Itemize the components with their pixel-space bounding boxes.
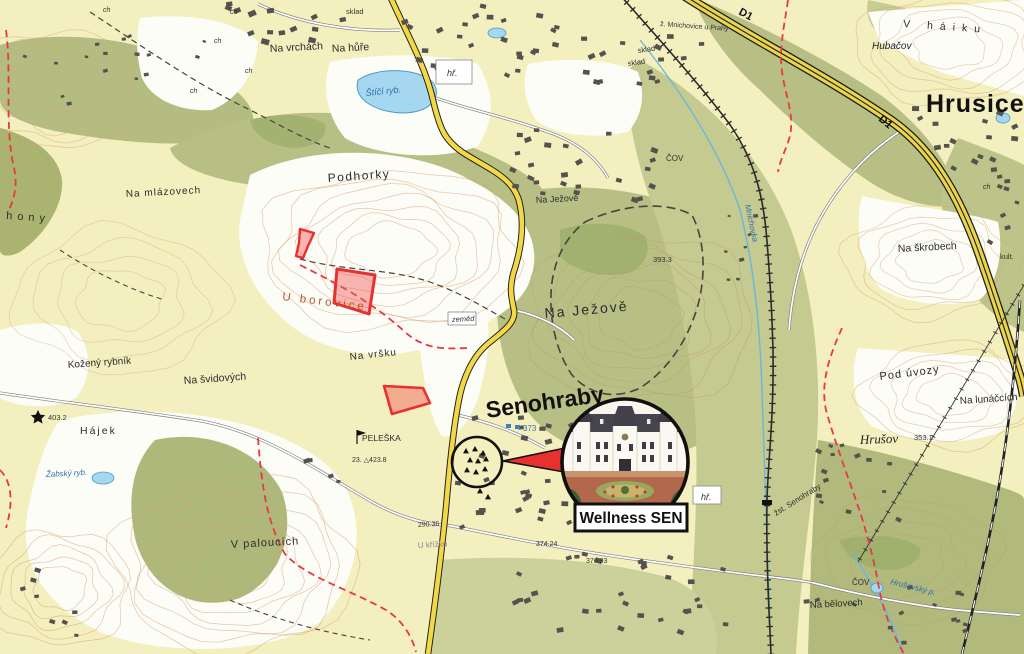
label-ch-4: ch	[245, 68, 253, 75]
pond-cov	[871, 583, 883, 593]
label-elev-373: 373	[523, 424, 537, 433]
label-kult: kult.	[1000, 252, 1014, 261]
label-ch-1: ch	[103, 7, 111, 14]
label-peleska: PELEŠKA	[362, 433, 401, 443]
topographic-map: Hrusice Senohraby Hrušov Hubačov Podhork…	[0, 0, 1024, 654]
label-elev-376: 376.93	[586, 558, 608, 565]
label-elev-374: 374.24	[536, 541, 558, 548]
label-ch-2: ch	[230, 9, 238, 16]
label-ch-6: ch	[983, 184, 991, 191]
label-sklad-3: sklad	[346, 7, 364, 16]
label-elev-393: 393.3	[653, 255, 672, 264]
label-hrusice: Hrusice	[926, 90, 1024, 118]
label-hrusov: Hrušov	[859, 431, 899, 447]
label-zemed: zeměd	[451, 314, 476, 324]
label-hr-1: hř.	[447, 68, 458, 78]
label-hubacov: Hubačov	[872, 41, 912, 52]
label-cov-1: ČOV	[666, 154, 684, 163]
pond-zabsky	[92, 472, 114, 484]
label-ch-3: ch	[214, 38, 222, 45]
label-elev-403: 403.2	[48, 413, 67, 422]
label-hr-2: hř.	[701, 492, 712, 502]
label-ch-5: ch	[190, 88, 198, 95]
label-elev-353: 353.1	[914, 433, 933, 442]
label-cov-2: ČOV	[852, 578, 870, 587]
pool-icon	[515, 425, 520, 429]
label-elev-290: 290.36	[418, 521, 440, 529]
label-elev-423: 23. △423.8	[352, 457, 387, 464]
label-hajek: Hájek	[80, 425, 117, 437]
callout-label: Wellness SEN	[575, 504, 687, 531]
station-symbol	[762, 500, 772, 505]
label-u-krizku: U křížku	[418, 539, 448, 550]
pond-small-1	[488, 28, 506, 38]
callout-title: Wellness SEN	[579, 510, 682, 527]
label-na-hure: Na hůře	[332, 41, 370, 55]
pool-icon	[506, 424, 511, 428]
